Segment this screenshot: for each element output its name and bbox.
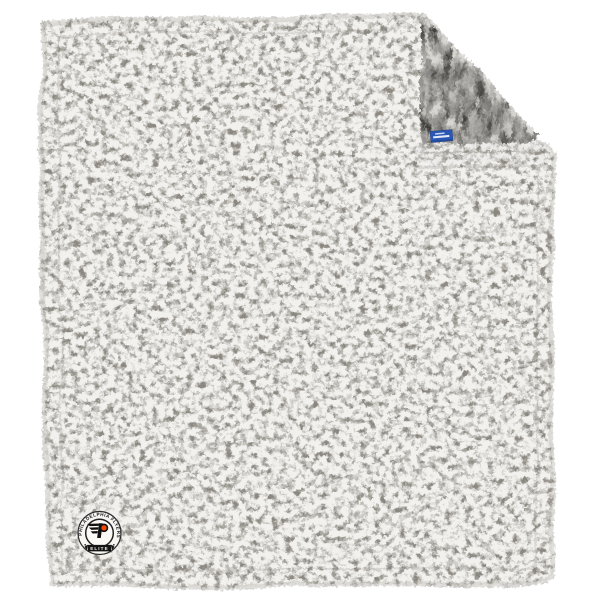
blanket-folded-corner bbox=[420, 14, 537, 144]
fold-shadow bbox=[413, 165, 551, 167]
product-photo: PHILADELPHIA FLYERS ELITE bbox=[0, 0, 600, 600]
badge-banner-text: ELITE bbox=[90, 546, 109, 551]
badge-ribbon: ELITE bbox=[85, 545, 115, 552]
team-badge: PHILADELPHIA FLYERS ELITE bbox=[78, 512, 121, 555]
flyers-logo-orange-disc bbox=[101, 525, 106, 530]
badge-separator-dot-right bbox=[113, 544, 115, 546]
badge-separator-dot-left bbox=[84, 544, 86, 546]
brand-tag bbox=[430, 130, 453, 143]
sherpa-blanket-image: PHILADELPHIA FLYERS ELITE bbox=[0, 0, 600, 600]
